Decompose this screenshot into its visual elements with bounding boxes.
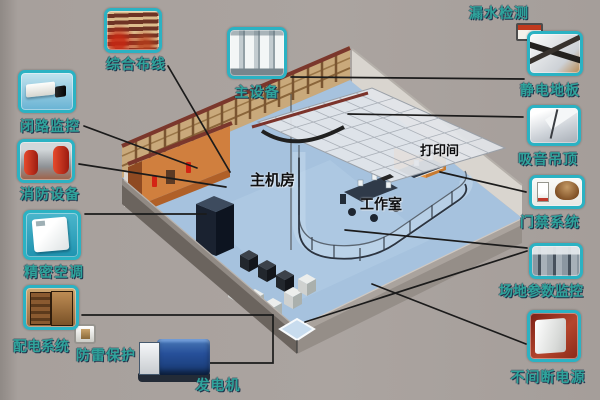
fire-equipment-label: 消防设备	[4, 184, 96, 204]
acoustic-ceiling-photo	[527, 105, 581, 146]
antistatic-floor-label: 静电地板	[504, 80, 596, 100]
generator-label: 发电机	[182, 375, 254, 395]
machine-room-label: 主机房	[250, 169, 295, 190]
precision-ac-photo	[23, 210, 81, 260]
fire-equipment-photo	[17, 139, 75, 183]
access-control-photo	[529, 175, 585, 209]
cctv-photo	[18, 70, 76, 113]
integrated-cabling-photo	[104, 8, 162, 53]
acoustic-ceiling-label: 吸音吊顶	[502, 149, 594, 169]
antistatic-floor-photo	[527, 31, 583, 76]
print-room-label: 打印间	[420, 140, 459, 159]
precision-ac-label: 精密空调	[10, 262, 98, 282]
fire-extinguisher	[152, 176, 157, 187]
ups-label: 不间断电源	[502, 367, 594, 387]
ups-photo	[527, 310, 581, 362]
site-monitoring-label: 场地参数监控	[486, 281, 596, 301]
main-equipment-label: 主设备	[219, 82, 295, 102]
site-monitoring-photo	[529, 243, 583, 279]
power-distribution-photo	[23, 285, 79, 330]
main-equipment-photo	[227, 27, 287, 79]
integrated-cabling-label: 综合布线	[86, 54, 186, 74]
work-room-label: 工作室	[360, 194, 402, 214]
access-control-label: 门禁系统	[504, 212, 596, 232]
machine-room-system-diagram: 主机房 工作室 打印间 综合布线 主设备 漏水检测 静电地板 吸音吊顶 门禁系统…	[0, 0, 600, 400]
leak-detection-label: 漏水检测	[451, 3, 547, 23]
power-distribution-label: 配电系统	[0, 336, 82, 356]
cctv-label: 闭路监控	[6, 116, 94, 136]
